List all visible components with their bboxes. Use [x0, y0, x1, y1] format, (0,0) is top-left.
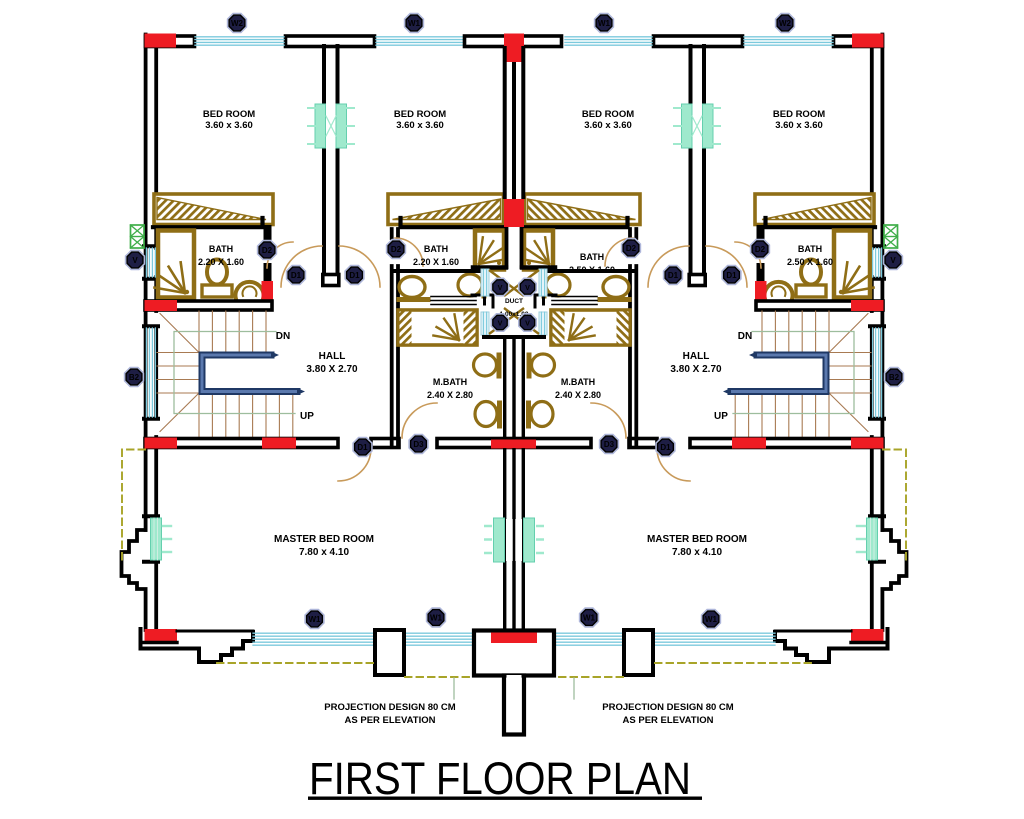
svg-text:V: V — [498, 283, 503, 292]
svg-text:2.20 X 1.60: 2.20 X 1.60 — [198, 257, 244, 267]
svg-text:D1: D1 — [726, 271, 737, 280]
svg-text:M.BATH: M.BATH — [561, 377, 595, 387]
svg-text:3.80 X 2.70: 3.80 X 2.70 — [670, 364, 722, 375]
svg-text:BATH: BATH — [798, 244, 822, 254]
svg-text:2.40 X 2.80: 2.40 X 2.80 — [555, 390, 601, 400]
svg-text:D2: D2 — [755, 245, 766, 254]
svg-text:D2: D2 — [262, 246, 273, 255]
svg-text:D1: D1 — [291, 271, 302, 280]
svg-text:M.BATH: M.BATH — [433, 377, 467, 387]
svg-text:HALL: HALL — [683, 351, 710, 362]
svg-text:AS PER ELEVATION: AS PER ELEVATION — [623, 715, 714, 726]
svg-text:BATH: BATH — [209, 244, 233, 254]
svg-text:3.80 X 2.70: 3.80 X 2.70 — [306, 364, 358, 375]
svg-text:UP: UP — [714, 411, 728, 422]
svg-text:D1: D1 — [660, 443, 671, 452]
svg-text:W1: W1 — [583, 614, 596, 623]
svg-text:V: V — [132, 256, 138, 265]
svg-text:PROJECTION DESIGN 80 CM: PROJECTION DESIGN 80 CM — [602, 702, 734, 713]
svg-text:MASTER BED ROOM: MASTER BED ROOM — [274, 534, 374, 545]
svg-text:BED ROOM: BED ROOM — [394, 109, 446, 120]
svg-text:FIRST FLOOR PLAN: FIRST FLOOR PLAN — [309, 753, 691, 804]
svg-text:3.60 x 3.60: 3.60 x 3.60 — [396, 120, 444, 131]
svg-text:D1: D1 — [668, 271, 679, 280]
svg-text:2.50 X 1.60: 2.50 X 1.60 — [787, 257, 833, 267]
svg-text:D3: D3 — [413, 440, 424, 449]
svg-text:B2: B2 — [889, 373, 900, 382]
svg-text:D1: D1 — [349, 271, 360, 280]
svg-text:B2: B2 — [129, 373, 140, 382]
svg-text:BATH: BATH — [580, 252, 604, 262]
svg-text:AS PER ELEVATION: AS PER ELEVATION — [345, 715, 436, 726]
svg-text:3.60 x 3.60: 3.60 x 3.60 — [775, 120, 823, 131]
svg-text:HALL: HALL — [319, 351, 346, 362]
svg-text:W1: W1 — [598, 19, 611, 28]
svg-text:3.60 x 3.60: 3.60 x 3.60 — [584, 120, 632, 131]
svg-text:D1: D1 — [357, 443, 368, 452]
svg-text:DN: DN — [276, 331, 290, 342]
svg-text:BED ROOM: BED ROOM — [582, 109, 634, 120]
svg-text:2.50 X 1.60: 2.50 X 1.60 — [569, 265, 615, 275]
svg-text:2.20 X 1.60: 2.20 X 1.60 — [413, 257, 459, 267]
svg-text:BED ROOM: BED ROOM — [203, 109, 255, 120]
svg-text:W1: W1 — [309, 615, 322, 624]
svg-text:2.40 X 2.80: 2.40 X 2.80 — [427, 390, 473, 400]
svg-text:V: V — [498, 319, 503, 328]
svg-text:BATH: BATH — [424, 244, 448, 254]
svg-text:D2: D2 — [626, 244, 637, 253]
svg-text:PROJECTION DESIGN 80 CM: PROJECTION DESIGN 80 CM — [324, 702, 456, 713]
svg-text:MASTER BED ROOM: MASTER BED ROOM — [647, 534, 747, 545]
svg-text:D3: D3 — [604, 440, 615, 449]
svg-text:UP: UP — [300, 411, 314, 422]
svg-text:W1: W1 — [430, 614, 443, 623]
svg-text:7.80 x 4.10: 7.80 x 4.10 — [672, 547, 722, 558]
svg-text:V: V — [525, 283, 530, 292]
svg-text:DUCT: DUCT — [505, 298, 523, 305]
svg-text:V: V — [525, 319, 530, 328]
svg-text:W2: W2 — [231, 19, 244, 28]
svg-text:3.60 x 3.60: 3.60 x 3.60 — [205, 120, 253, 131]
svg-text:7.80 x 4.10: 7.80 x 4.10 — [299, 547, 349, 558]
svg-text:DN: DN — [738, 331, 752, 342]
svg-text:BED ROOM: BED ROOM — [773, 109, 825, 120]
svg-text:V: V — [890, 256, 896, 265]
svg-text:W1: W1 — [705, 615, 718, 624]
svg-text:D2: D2 — [391, 245, 402, 254]
svg-text:W2: W2 — [779, 19, 792, 28]
svg-text:W1: W1 — [408, 19, 421, 28]
